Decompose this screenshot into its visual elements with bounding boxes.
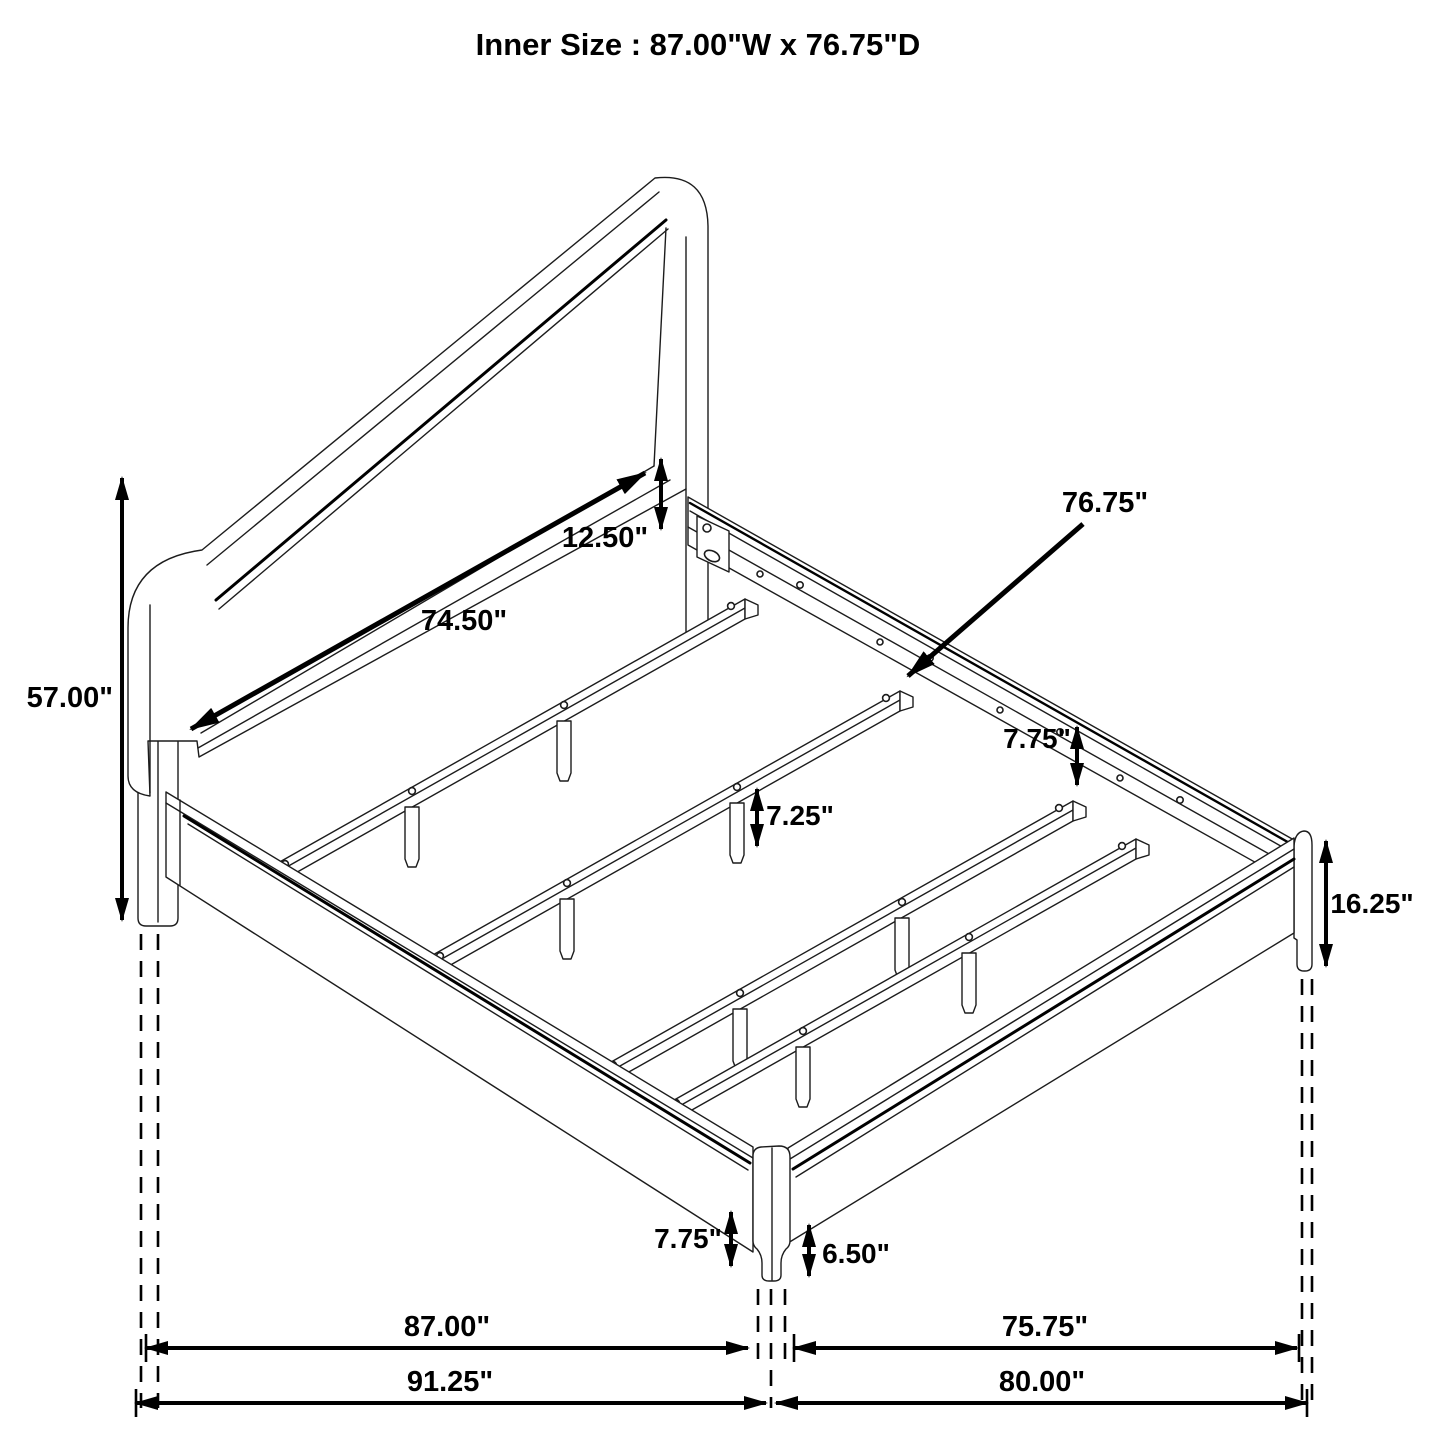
dim-label-footboard-height: 16.25" [1330,888,1413,919]
dim-label-rail-height-rear: 7.75" [1003,723,1071,754]
dim-label-headboard-panel-width: 74.50" [421,605,507,637]
dim-label-center-support-height: 7.25" [766,800,834,831]
dim-label-inner-width: 87.00" [404,1311,490,1343]
dim-label-overall-width: 91.25" [407,1366,493,1398]
far-corner-post [1294,831,1312,971]
dim-label-inner-depth: 76.75" [1062,487,1148,519]
dim-label-front-leg-height: 7.75" [654,1223,722,1254]
dim-label-footboard-inner-width: 75.75" [1002,1311,1088,1343]
diagram-page: Inner Size : 87.00"W x 76.75"D 57.00" 74… [0,0,1445,1445]
dim-label-front-leg-exposed: 6.50" [822,1238,890,1269]
near-side-rail [166,792,753,1252]
page-title: Inner Size : 87.00"W x 76.75"D [476,27,921,62]
dim-label-overall-depth: 80.00" [999,1366,1085,1398]
bed-frame-diagram: Inner Size : 87.00"W x 76.75"D 57.00" 74… [0,0,1445,1445]
dim-label-headboard-panel-offset: 12.50" [562,522,648,554]
dim-label-headboard-height: 57.00" [27,682,113,714]
near-corner-post [753,1146,790,1281]
arrow-inner-depth-leader [908,524,1083,676]
